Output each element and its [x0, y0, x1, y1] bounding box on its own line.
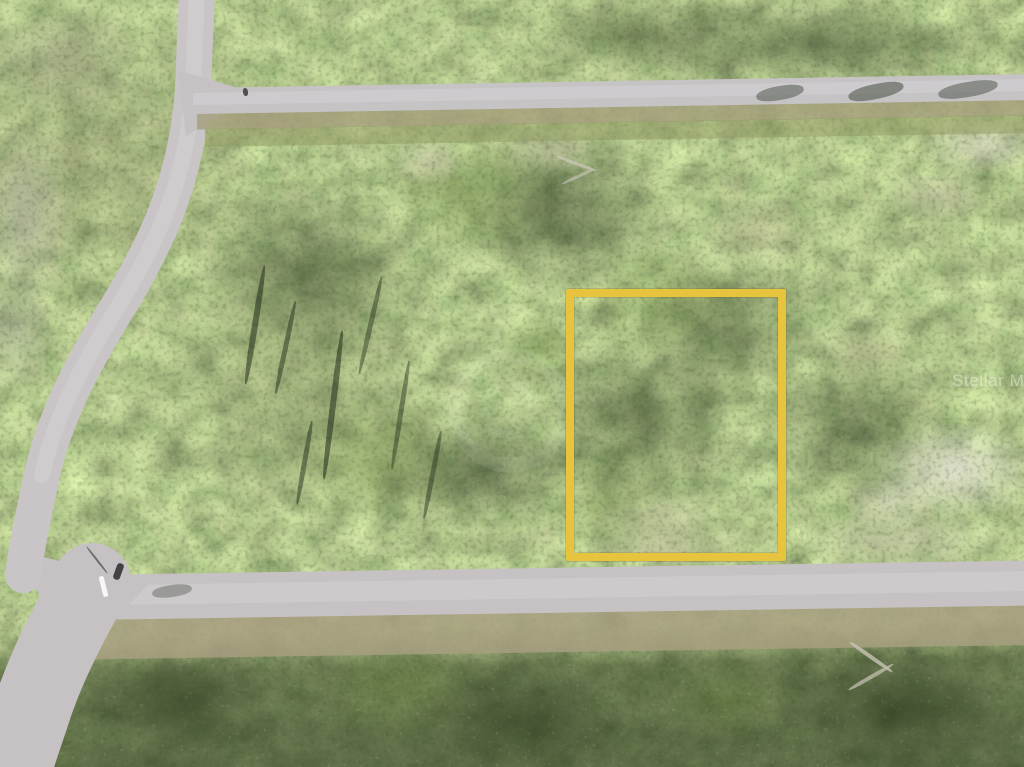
- tree-shadow-on-road: [937, 77, 999, 102]
- aerial-photo-vacant-land: Stellar MLS: [0, 0, 1024, 767]
- mls-watermark: Stellar MLS: [952, 371, 1024, 391]
- tree-shadow-on-road: [151, 582, 192, 599]
- dead-branch: [561, 168, 595, 186]
- road-marking-white-dash: [99, 576, 109, 598]
- tree-shadow-streak: [321, 330, 345, 480]
- pedestrian-figure: [112, 562, 124, 580]
- tree-shadow-streak: [389, 360, 411, 469]
- mailbox-dot: [242, 88, 248, 97]
- tree-shadow-on-road: [755, 82, 805, 104]
- property-boundary-highlight: [566, 289, 786, 561]
- tree-shadow-streak: [243, 265, 268, 384]
- tree-shadow-streak: [357, 276, 384, 375]
- tree-shadow-on-road: [847, 78, 905, 104]
- tree-shadow-streak: [421, 430, 443, 519]
- tree-shadow-streak: [273, 301, 298, 395]
- pole-shadow: [86, 546, 109, 574]
- photo-details: [0, 0, 1024, 767]
- tree-shadow-streak: [295, 420, 315, 505]
- dead-branch: [847, 662, 894, 691]
